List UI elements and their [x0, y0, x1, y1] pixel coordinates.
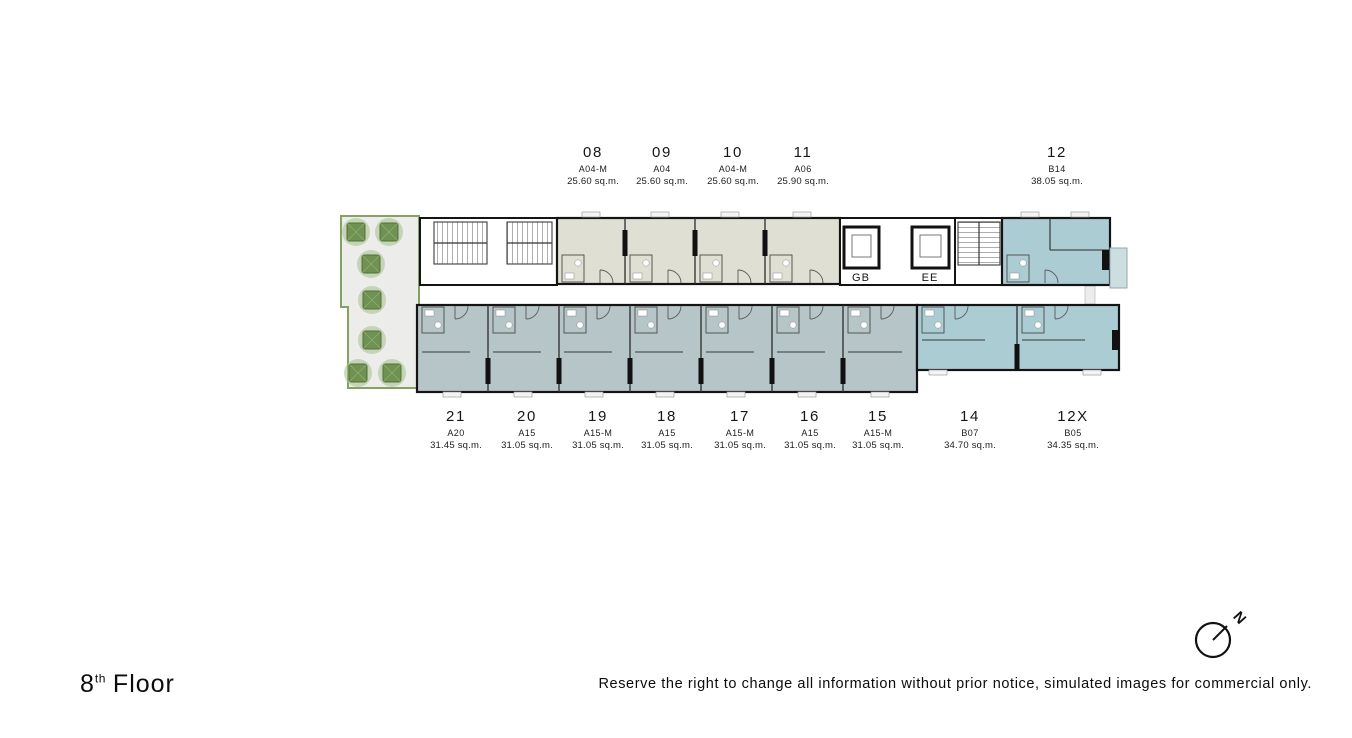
tree-icon — [358, 326, 386, 354]
compass-north-label: N — [1229, 608, 1249, 627]
units-bottom-right-block — [917, 305, 1119, 375]
balcony — [1110, 248, 1127, 288]
unit-label-12x: 12X B05 34.35 sq.m. — [1013, 409, 1133, 451]
floor-title: 8thFloor — [80, 670, 175, 699]
garden-terrace — [341, 216, 419, 388]
tree-icon — [375, 218, 403, 246]
unit-label-11: 11 A06 25.90 sq.m. — [743, 145, 863, 187]
tree-icon — [378, 359, 406, 387]
tree-icon — [358, 286, 386, 314]
unit-label-12: 12 B14 38.05 sq.m. — [997, 145, 1117, 187]
floor-number: 8 — [80, 670, 95, 698]
disclaimer-text: Reserve the right to change all informat… — [598, 676, 1312, 692]
stair-core-left — [420, 218, 557, 285]
unit-12-shape — [1002, 212, 1127, 288]
staircase-icon — [507, 222, 552, 264]
tree-icon — [357, 250, 385, 278]
floor-plan-svg: GB EE — [0, 0, 1352, 738]
staircase-icon — [958, 222, 1000, 265]
floor-word: Floor — [113, 670, 175, 698]
elevator-gb-label: GB — [852, 272, 870, 284]
floorplan-page: GB EE — [0, 0, 1352, 738]
staircase-icon — [434, 222, 487, 264]
elevator-ee-label: EE — [922, 272, 939, 284]
elevator-core: GB EE — [840, 218, 955, 285]
compass-north-icon: N — [1196, 608, 1249, 657]
units-top-block — [557, 212, 840, 284]
tree-icon — [344, 359, 372, 387]
unit-label-14: 14 B07 34.70 sq.m. — [910, 409, 1030, 451]
units-bottom-left-block — [417, 305, 917, 397]
corridor-connector — [1085, 286, 1095, 304]
stair-core-right — [955, 218, 1002, 285]
floor-ordinal-suffix: th — [95, 672, 106, 686]
tree-icon — [342, 218, 370, 246]
